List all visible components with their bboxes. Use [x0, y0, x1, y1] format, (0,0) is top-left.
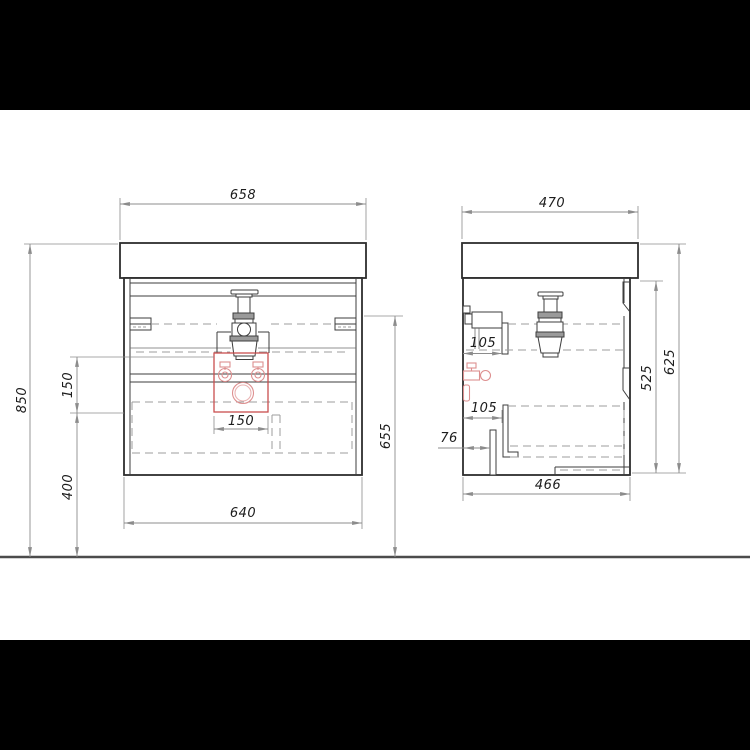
dim-slide-offset-upper: 105 [463, 336, 502, 354]
side-view [462, 243, 638, 475]
dim-label-cabinet-width: 640 [230, 506, 256, 521]
dim-label-cabinet-depth: 466 [535, 478, 561, 493]
dim-cabinet-depth: 466 [463, 477, 630, 501]
dim-label-bracket-offset: 76 [440, 431, 458, 446]
front-drawer-slide-right [335, 318, 356, 330]
dim-side-top-depth: 470 [462, 196, 638, 239]
side-bottom-bracket [490, 430, 496, 475]
dim-side-height: 655 [364, 316, 403, 557]
dim-total-height: 850 [15, 244, 118, 557]
drawing-canvas: 658 850 150 400 640 655 [0, 0, 750, 750]
front-drawer-slide-left [130, 318, 151, 330]
dim-label-overall-height: 625 [663, 349, 678, 375]
dim-label-front-top-width: 658 [230, 188, 256, 203]
technical-drawing: 658 850 150 400 640 655 [0, 0, 750, 750]
dim-label-slide-offset-upper: 105 [470, 336, 496, 351]
dim-cabinet-width: 640 [124, 477, 362, 529]
dim-label-under-clearance: 400 [61, 474, 76, 500]
dim-label-slide-offset-lower: 105 [471, 401, 497, 416]
dim-overall-height: 625 [632, 244, 686, 473]
front-countertop [120, 243, 366, 278]
side-countertop [462, 243, 638, 278]
dim-label-inlet-zone-height: 150 [61, 372, 76, 398]
dim-label-total-height: 850 [15, 387, 30, 413]
dim-carcass-height: 525 [640, 281, 663, 473]
dim-front-top-width: 658 [120, 188, 366, 240]
front-view [120, 243, 366, 475]
letterbox-top [0, 0, 750, 110]
dim-label-carcass-height: 525 [640, 365, 655, 391]
dim-label-side-top-depth: 470 [539, 196, 565, 211]
dim-label-side-height: 655 [379, 423, 394, 449]
letterbox-bottom [0, 640, 750, 750]
dim-label-inlet-zone-width: 150 [228, 414, 254, 429]
side-wall-bracket [463, 306, 470, 313]
dim-under-clearance: 400 [61, 413, 77, 557]
